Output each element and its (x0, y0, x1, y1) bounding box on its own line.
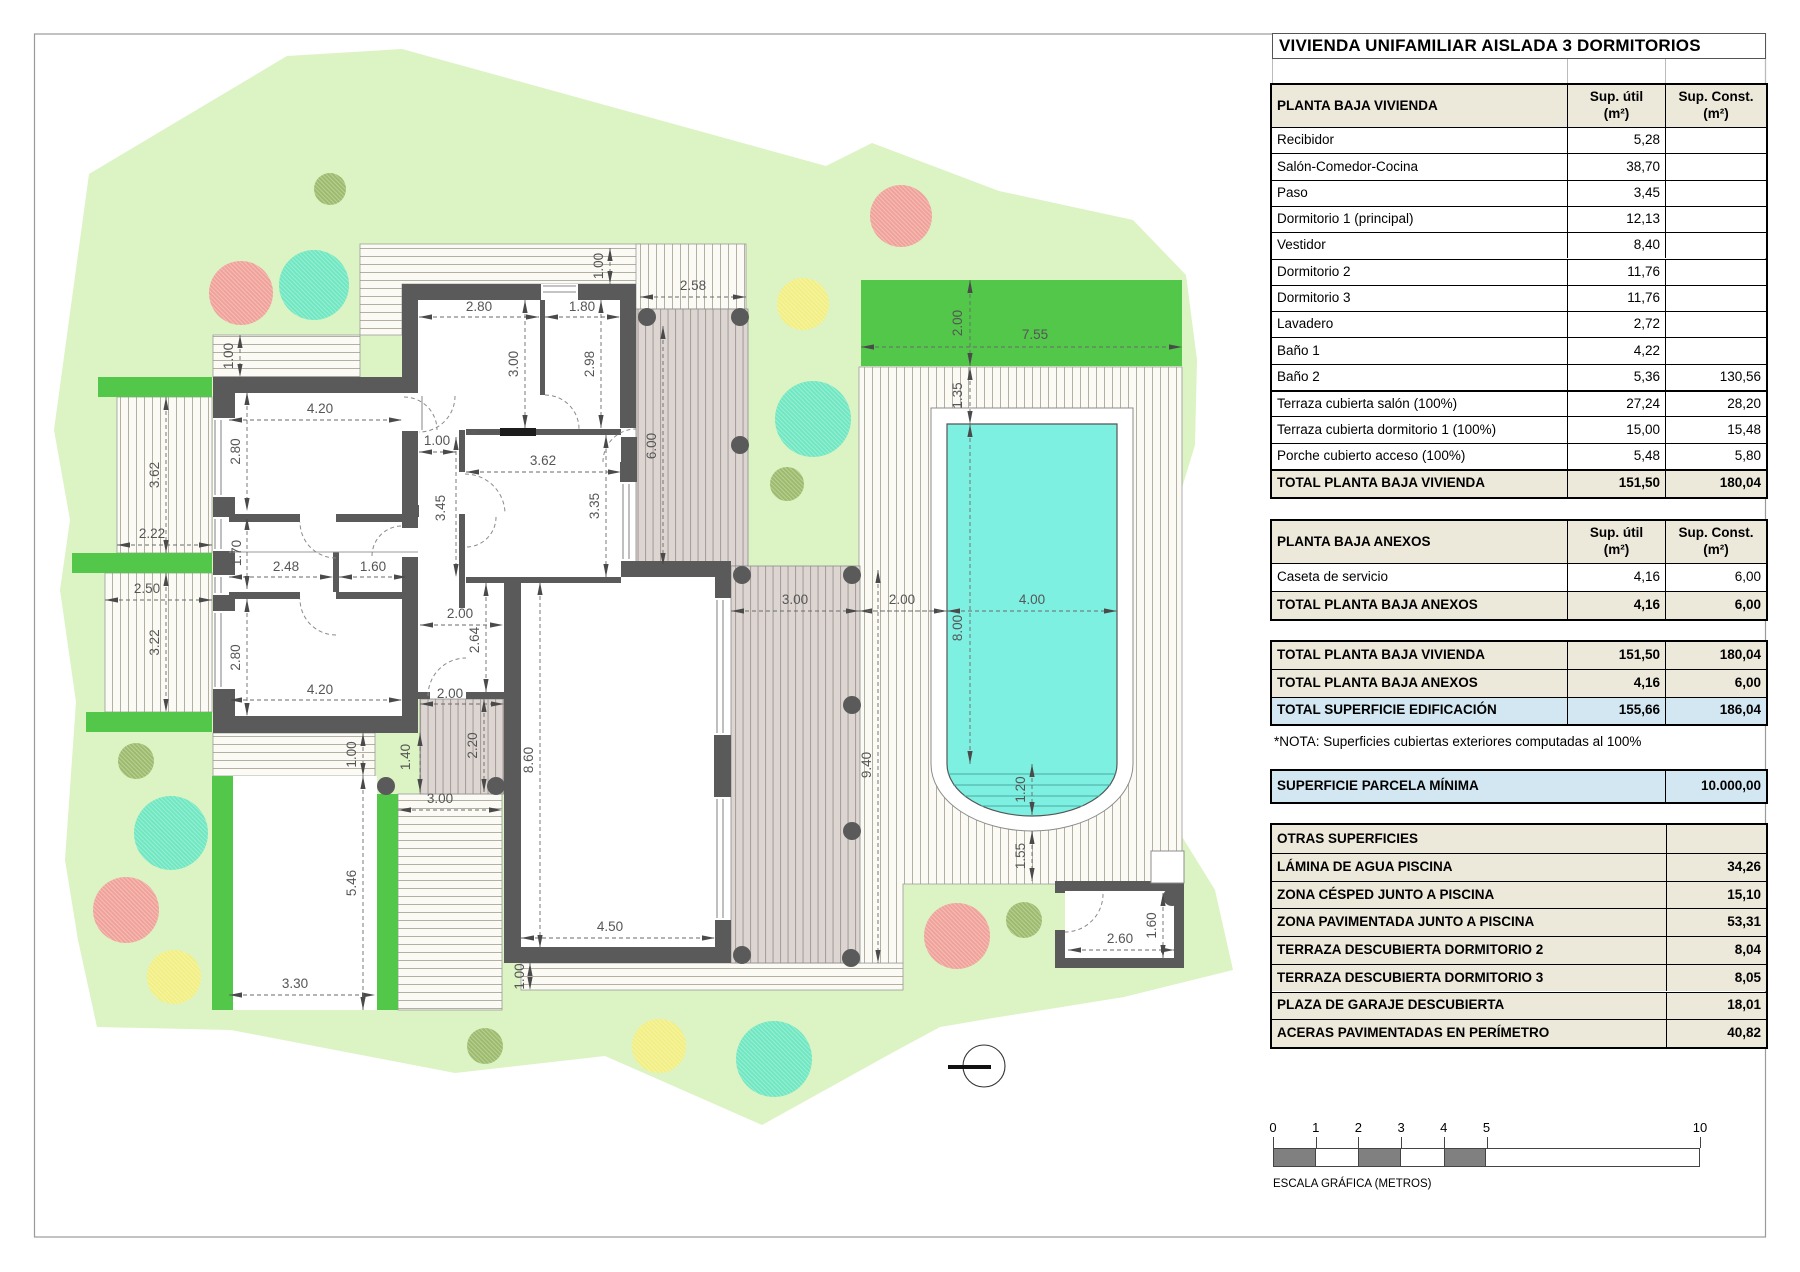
svg-text:7.55: 7.55 (1022, 327, 1048, 342)
svg-text:5.46: 5.46 (344, 870, 359, 896)
svg-text:1.40: 1.40 (398, 744, 413, 770)
svg-text:1.00: 1.00 (424, 433, 450, 448)
svg-text:2.80: 2.80 (466, 299, 492, 314)
svg-text:3.00: 3.00 (427, 791, 453, 806)
svg-text:2.98: 2.98 (582, 351, 597, 377)
svg-text:3.00: 3.00 (506, 351, 521, 377)
svg-text:1.20: 1.20 (1013, 776, 1028, 802)
svg-text:2.00: 2.00 (950, 310, 965, 336)
svg-text:8.00: 8.00 (950, 615, 965, 641)
svg-text:8.60: 8.60 (521, 747, 536, 773)
svg-text:3.22: 3.22 (147, 629, 162, 655)
svg-text:2.00: 2.00 (447, 606, 473, 621)
svg-text:4.50: 4.50 (597, 919, 623, 934)
svg-text:2.00: 2.00 (437, 686, 463, 701)
svg-text:4.20: 4.20 (307, 682, 333, 697)
svg-text:3.30: 3.30 (282, 976, 308, 991)
svg-text:9.40: 9.40 (859, 752, 874, 778)
svg-text:2.20: 2.20 (465, 732, 480, 758)
svg-text:1.00: 1.00 (591, 253, 606, 279)
svg-text:2.48: 2.48 (273, 559, 299, 574)
svg-text:1.35: 1.35 (950, 382, 965, 408)
svg-text:2.64: 2.64 (467, 626, 482, 653)
svg-text:3.62: 3.62 (530, 453, 556, 468)
svg-text:2.80: 2.80 (228, 438, 243, 464)
svg-text:2.22: 2.22 (139, 526, 165, 541)
svg-text:1.00: 1.00 (221, 343, 236, 369)
svg-text:3.62: 3.62 (147, 462, 162, 488)
svg-text:4.20: 4.20 (307, 401, 333, 416)
svg-text:1.60: 1.60 (360, 559, 386, 574)
svg-text:2.80: 2.80 (228, 644, 243, 670)
svg-text:1.70: 1.70 (229, 540, 244, 566)
svg-text:1.00: 1.00 (512, 963, 527, 989)
svg-text:3.35: 3.35 (587, 493, 602, 519)
svg-text:3.45: 3.45 (433, 495, 448, 521)
svg-text:4.00: 4.00 (1019, 592, 1045, 607)
svg-text:3.00: 3.00 (782, 592, 808, 607)
svg-text:2.58: 2.58 (680, 278, 706, 293)
svg-text:2.50: 2.50 (134, 581, 160, 596)
svg-text:1.80: 1.80 (569, 299, 595, 314)
svg-text:2.60: 2.60 (1107, 931, 1133, 946)
svg-text:2.00: 2.00 (889, 592, 915, 607)
svg-text:1.60: 1.60 (1144, 912, 1159, 938)
svg-text:6.00: 6.00 (644, 433, 659, 459)
svg-text:1.55: 1.55 (1013, 843, 1028, 869)
svg-text:1.00: 1.00 (344, 741, 359, 767)
